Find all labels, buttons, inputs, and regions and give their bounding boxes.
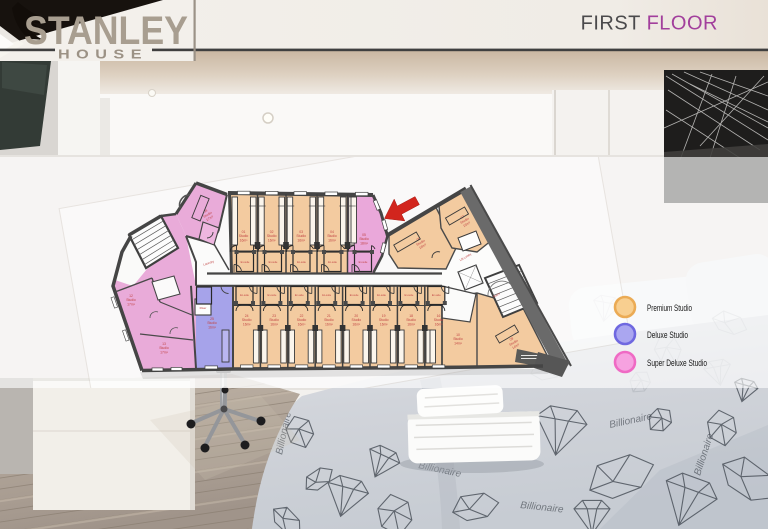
svg-text:En-suite: En-suite — [269, 261, 278, 264]
svg-text:STANLEY: STANLEY — [24, 9, 188, 53]
svg-text:Deluxe Studio: Deluxe Studio — [647, 330, 688, 340]
svg-text:En-suite: En-suite — [295, 294, 304, 297]
svg-text:Premium Studio: Premium Studio — [647, 303, 692, 313]
svg-text:Super Deluxe Studio: Super Deluxe Studio — [647, 358, 707, 368]
svg-text:En-suite: En-suite — [297, 261, 306, 264]
svg-text:En-suite: En-suite — [377, 294, 386, 297]
svg-text:En-suite: En-suite — [268, 294, 277, 297]
svg-text:En-suite: En-suite — [241, 261, 250, 264]
svg-text:En-suite: En-suite — [240, 294, 249, 297]
svg-text:En-suite: En-suite — [350, 294, 359, 297]
svg-text:Riser: Riser — [200, 306, 207, 310]
svg-text:En-suite: En-suite — [432, 294, 441, 297]
svg-text:En-suite: En-suite — [405, 294, 414, 297]
svg-text:FIRST FLOOR: FIRST FLOOR — [581, 13, 718, 35]
svg-text:En-suite: En-suite — [328, 261, 337, 264]
svg-text:En-suite: En-suite — [322, 294, 331, 297]
svg-text:En-suite: En-suite — [359, 261, 368, 264]
svg-text:HOUSE: HOUSE — [58, 48, 148, 62]
